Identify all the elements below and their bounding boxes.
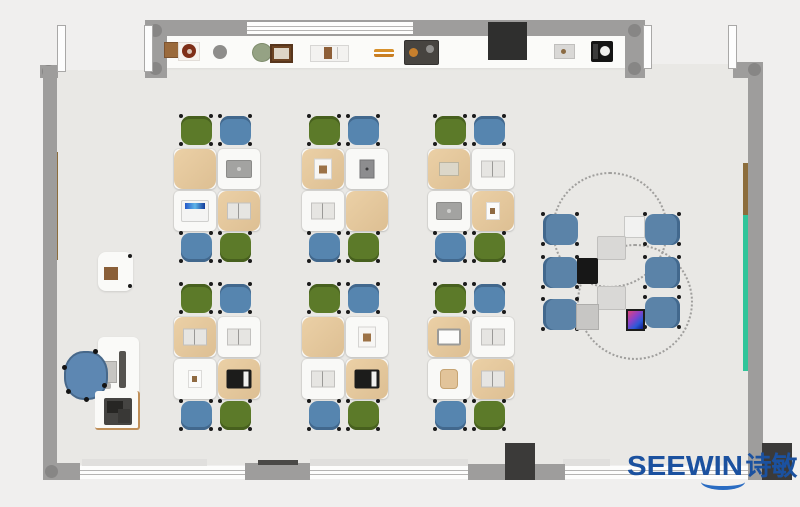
chair-leg [209,142,213,146]
student-chair-blue [309,401,340,430]
desk-item-book-white [358,327,376,348]
chair-leg [307,399,311,403]
chair-leg [502,282,506,286]
device-phone-color [626,309,645,331]
chair-leg [307,142,311,146]
desk-item-book-open [481,329,505,346]
chair-leg [463,142,467,146]
device-tablet-blue [624,216,645,238]
student-chair-green [348,233,379,262]
chair-leg [472,114,476,118]
student-chair-blue [220,116,251,145]
chair-leg [346,282,350,286]
chair-leg [376,114,380,118]
chair-leg [472,427,476,431]
student-desk [346,317,388,357]
teacher-monitor [119,351,126,388]
desk-item-bag [440,369,458,389]
student-chair-green [220,233,251,262]
office-chair-leg [102,383,107,388]
chair-leg [376,427,380,431]
chair-leg [307,259,311,263]
student-chair-blue [474,116,505,145]
student-desk [346,359,388,399]
chair-leg [575,212,579,216]
chair-leg [643,255,647,259]
desk-item-book-open [183,329,207,346]
chair-leg [376,259,380,263]
student-chair-green [309,284,340,313]
chair-leg [502,114,506,118]
shelf-item-tray-gray [554,44,575,59]
desk-item-laptop-open [181,200,209,222]
desk-item-paper [486,202,500,220]
chair-leg [433,427,437,431]
chair-leg [463,282,467,286]
desk-item-laptop-dark [226,160,252,178]
chair-leg [463,399,467,403]
student-desk [174,317,216,357]
chair-leg [541,212,545,216]
chair-leg [346,142,350,146]
chair-leg [346,231,350,235]
shelf-item-plant-green [252,43,272,62]
chair-leg [337,427,341,431]
office-chair-leg [66,389,71,394]
desk-bag-cover [346,191,388,231]
student-desk [428,149,470,189]
desk-item-book-open [227,329,251,346]
student-chair-blue [474,284,505,313]
chair-leg [179,310,183,314]
printer-tray [118,409,130,423]
student-chair-blue [181,233,212,262]
desk-item-book-open [481,371,505,388]
chair-leg [218,114,222,118]
chair-leg [433,259,437,263]
floorplan: SEEWIN 诗敏 [0,0,800,507]
student-chair-green [474,233,505,262]
chair-leg [179,231,183,235]
desk-item-laptop-black [355,370,380,389]
chair-leg [677,212,681,216]
chair-leg [209,259,213,263]
chair-leg [463,427,467,431]
shelf-item-books-white [310,45,349,62]
shelf-item-ball-gray [213,45,227,59]
cabinet-hinge [128,284,132,288]
chair-leg [643,295,647,299]
chair-leg [218,259,222,263]
chair-leg [346,114,350,118]
shelf-item-torus-red [178,42,200,61]
student-desk [472,191,514,231]
collab-chair-blue [645,297,680,328]
chair-leg [472,310,476,314]
desk-item-book-open [311,203,335,220]
chair-leg [575,285,579,289]
chair-leg [376,142,380,146]
chair-leg [376,310,380,314]
chair-leg [218,231,222,235]
chair-leg [209,399,213,403]
student-desk [302,149,344,189]
student-chair-blue [435,401,466,430]
collab-chair-blue [645,257,680,288]
chair-leg [575,242,579,246]
chair-leg [463,114,467,118]
desk-item-laptop-dark [436,202,462,220]
student-desk [472,149,514,189]
device-pad-gray [597,236,626,260]
chair-leg [643,242,647,246]
chair-leg [643,285,647,289]
chair-leg [433,114,437,118]
chair-leg [376,282,380,286]
chair-leg [209,114,213,118]
shelf-item-device-bw [591,41,613,62]
desk-bag-cover [174,149,216,189]
chair-leg [248,231,252,235]
chair-leg [472,399,476,403]
chair-leg [346,259,350,263]
chair-leg [376,231,380,235]
desk-bag-cover [302,317,344,357]
chair-leg [677,285,681,289]
chair-leg [179,259,183,263]
chair-leg [463,259,467,263]
desk-item-notebook [439,162,459,176]
device-laptop-black [577,258,598,284]
chair-leg [337,231,341,235]
chair-leg [337,399,341,403]
chair-leg [502,259,506,263]
chair-leg [677,242,681,246]
desk-item-tablet-dark [360,160,375,179]
student-desk [472,359,514,399]
chair-leg [433,231,437,235]
student-desk [346,191,388,231]
chair-leg [337,259,341,263]
chair-leg [433,310,437,314]
chair-leg [248,114,252,118]
student-chair-blue [348,116,379,145]
chair-leg [307,231,311,235]
student-chair-green [181,116,212,145]
chair-leg [179,399,183,403]
student-desk [218,149,260,189]
student-chair-blue [435,233,466,262]
chair-leg [502,142,506,146]
chair-leg [179,142,183,146]
desk-item-book-open [227,203,251,220]
chair-leg [209,310,213,314]
chair-leg [248,310,252,314]
chair-leg [218,310,222,314]
student-desk [174,149,216,189]
office-chair-leg [84,397,89,402]
student-chair-green [435,284,466,313]
chair-leg [472,231,476,235]
chair-leg [179,427,183,431]
chair-leg [218,427,222,431]
student-chair-blue [181,401,212,430]
chair-leg [179,114,183,118]
student-chair-green [435,116,466,145]
chair-leg [575,297,579,301]
side-cabinet [98,252,133,291]
chair-leg [472,142,476,146]
chair-leg [248,282,252,286]
chair-leg [337,310,341,314]
chair-leg [337,282,341,286]
shelf-item-sticks-orange [374,49,394,57]
student-chair-green [181,284,212,313]
chair-leg [218,282,222,286]
student-desk [428,317,470,357]
student-desk [218,191,260,231]
desk-item-book-open [311,371,335,388]
student-desk [174,359,216,399]
device-laptop-gray [576,304,599,330]
chair-leg [307,310,311,314]
chair-leg [463,310,467,314]
chair-leg [307,282,311,286]
student-desk [428,359,470,399]
collab-chair-blue [543,257,578,288]
student-desk [218,359,260,399]
chair-leg [209,282,213,286]
furniture-layer [0,0,800,507]
student-chair-green [309,116,340,145]
student-chair-blue [309,233,340,262]
device-pad-gray [597,286,626,310]
chair-leg [472,282,476,286]
student-desk [302,359,344,399]
student-desk [302,317,344,357]
chair-leg [433,399,437,403]
desk-item-book-open [481,161,505,178]
collab-chair-blue [543,299,578,330]
chair-leg [346,310,350,314]
student-chair-blue [220,284,251,313]
cabinet-item [104,267,118,280]
chair-leg [248,427,252,431]
chair-leg [218,142,222,146]
student-chair-blue [348,284,379,313]
student-chair-green [348,401,379,430]
chair-leg [209,231,213,235]
cabinet-hinge [128,254,132,258]
collab-chair-blue [645,214,680,245]
printer [104,398,132,425]
student-desk [302,191,344,231]
office-chair-leg [93,349,98,354]
chair-leg [541,255,545,259]
chair-leg [433,282,437,286]
chair-leg [541,285,545,289]
office-chair-leg [62,365,67,370]
chair-leg [677,255,681,259]
chair-leg [209,427,213,431]
collab-chair-blue [543,214,578,245]
chair-leg [433,142,437,146]
chair-leg [376,399,380,403]
chair-leg [541,327,545,331]
chair-leg [463,231,467,235]
shelf-item-frame-brown [270,44,293,63]
logo-cn-text: 诗敏 [745,446,797,483]
desk-item-book-white [314,159,332,180]
chair-leg [307,114,311,118]
chair-leg [502,427,506,431]
chair-leg [502,399,506,403]
student-desk [428,191,470,231]
shelf-item-box-brown [164,42,179,58]
student-desk [472,317,514,357]
seewin-logo: SEEWIN 诗敏 [627,446,797,483]
chair-leg [541,297,545,301]
chair-leg [218,399,222,403]
chair-leg [502,310,506,314]
student-desk [346,149,388,189]
chair-leg [541,242,545,246]
chair-leg [472,259,476,263]
chair-leg [346,427,350,431]
chair-leg [502,231,506,235]
desk-item-laptop-black [227,370,252,389]
desk-item-paper [188,370,202,388]
chair-leg [346,399,350,403]
chair-leg [179,282,183,286]
chair-leg [677,295,681,299]
chair-leg [248,259,252,263]
student-chair-green [474,401,505,430]
desk-item-monitor [437,329,461,346]
chair-leg [677,325,681,329]
chair-leg [248,399,252,403]
chair-leg [337,114,341,118]
chair-leg [307,427,311,431]
student-desk [218,317,260,357]
chair-leg [248,142,252,146]
student-chair-green [220,401,251,430]
shelf-item-tray-dark [404,40,439,65]
chair-leg [337,142,341,146]
logo-smile-arc [701,474,745,490]
student-desk [174,191,216,231]
